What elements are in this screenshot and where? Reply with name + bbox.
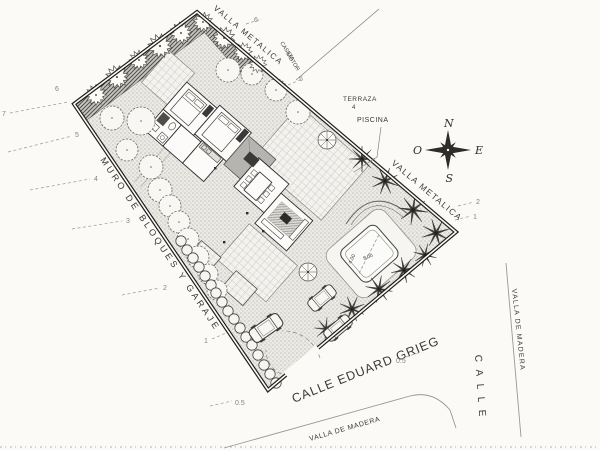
contour-label: 1 <box>473 214 477 221</box>
contour-label: 3 <box>126 218 130 225</box>
hedge-shrub <box>259 360 269 370</box>
contour-label: 0.5 <box>235 400 245 407</box>
contour-label: 2 <box>476 199 480 206</box>
terrace-label: TERRAZA <box>343 96 377 103</box>
contour-label: 0.5 <box>396 358 406 365</box>
hedge-shrub <box>176 236 186 246</box>
parasol <box>299 263 317 281</box>
contour-label: 2 <box>163 285 167 292</box>
compass-north-label: N <box>443 117 454 130</box>
hedge-shrub <box>229 314 239 324</box>
site-plan-drawing: VALLA METALICA VALLA METALICA MURO DE BL… <box>0 0 600 450</box>
site-plan-page: VALLA METALICA VALLA METALICA MURO DE BL… <box>0 0 600 450</box>
hedge-shrub <box>253 350 263 360</box>
compass-east-label: E <box>474 144 483 157</box>
contour-label: 5 <box>299 76 303 83</box>
compass-center <box>447 149 450 152</box>
compass-south-label: S <box>446 172 454 185</box>
contour-label: 6 <box>55 86 59 93</box>
hedge-shrub <box>217 297 227 307</box>
contour-label: 7 <box>2 111 6 118</box>
hedge-shrub <box>211 288 221 298</box>
parasol <box>318 131 336 149</box>
hedge-shrub <box>188 253 198 263</box>
pool-label: PISCINA <box>357 117 389 124</box>
hedge-shrub <box>235 323 245 333</box>
contour-label: 5 <box>75 132 79 139</box>
compass-west-label: O <box>413 144 422 157</box>
hedge-shrub <box>265 369 275 379</box>
contour-label: 1 <box>204 338 208 345</box>
hedge-shrub <box>200 271 210 281</box>
contour-label: 4 <box>94 176 98 183</box>
hedge-shrub <box>194 262 204 272</box>
contour-label: 6 <box>254 17 258 24</box>
